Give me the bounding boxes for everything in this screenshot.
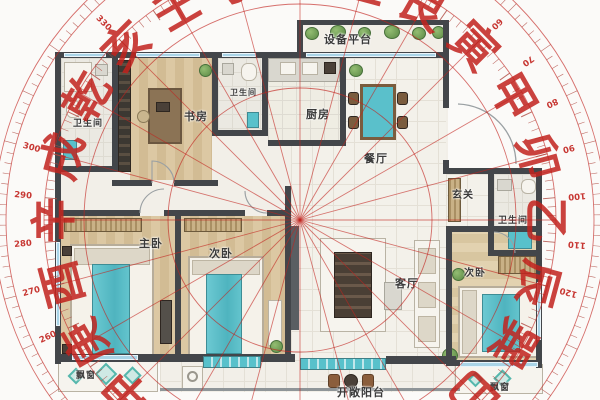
room-label-bath-top-left: 卫生间 [73,116,103,129]
tv-wall [291,226,299,330]
plant-icon [349,64,363,77]
desk-chair [137,110,150,123]
svg-text:100: 100 [568,190,587,202]
svg-text:90: 90 [561,142,575,155]
wardrobe [64,218,142,232]
plant-icon [270,340,283,353]
dining-chair [397,116,408,129]
svg-text:甲: 甲 [478,64,548,131]
wall [112,180,152,186]
room-label-kitchen: 厨房 [306,106,330,122]
bath-mat [63,140,77,160]
shower-door [247,112,259,128]
sofa-cushion [418,282,436,308]
shower-area [508,231,532,249]
room-label-bay-window-right: 飘窗 [490,380,510,393]
wall [112,52,118,172]
kitchen-sink [280,62,296,75]
wall [446,232,452,362]
plant-icon [305,27,319,40]
dining-chair [397,92,408,105]
balcony-sliding-door [203,356,261,368]
toilet [521,179,536,194]
wardrobe [498,256,540,274]
svg-text:70: 70 [520,53,535,68]
wall [488,250,542,256]
wall [175,216,181,356]
wall [55,166,118,172]
wall [340,52,346,146]
wall [488,174,494,256]
room-label-study: 书房 [184,108,208,124]
wall [262,52,268,136]
dining-chair [348,116,359,129]
floor-plan-screenshot: 卫生间 书房 卫生间 设备平台 厨房 餐厅 玄关 卫生间 主卧 次卧 客厅 次卧… [0,0,600,400]
washing-machine-door [187,371,198,382]
svg-text:寅: 寅 [439,11,510,82]
bed-pillows [192,260,260,275]
svg-text:120: 120 [559,285,579,299]
window [64,53,106,57]
svg-text:330: 330 [94,14,114,34]
stove [324,62,336,74]
wall [212,130,268,136]
bed-pillows [462,290,477,354]
entry-door-arc [458,104,516,164]
wall [297,20,449,25]
room-label-bath-right: 卫生间 [498,213,528,226]
bay-window-glass [460,362,538,367]
wall [212,52,218,136]
bookshelf [118,60,131,172]
nightstand [62,246,72,256]
dresser [160,300,172,344]
balcony-sliding-door [300,358,386,370]
room-label-bedroom-mid: 次卧 [209,245,233,261]
window [136,53,200,57]
sink [497,179,512,191]
desk [148,88,182,144]
room-label-foyer: 玄关 [452,186,474,201]
decor-shelf [334,252,372,318]
svg-text:壬: 壬 [144,0,211,42]
room-label-bay-window-left: 飘窗 [76,368,96,381]
window [537,282,541,340]
bed-blanket [206,274,242,354]
svg-text:280: 280 [14,238,33,250]
room-label-open-balcony: 开敞阳台 [337,384,385,400]
kitchen-sink [302,62,318,75]
laptop [156,102,170,112]
dining-table [360,84,396,140]
bay-window-glass [72,355,138,360]
svg-text:270: 270 [22,285,42,299]
shower-tray [64,62,92,92]
wardrobe [184,218,242,232]
sofa-cushion [418,248,436,274]
wall [446,226,542,232]
balcony-railing [160,388,460,391]
wall [443,20,449,108]
wall [55,210,140,216]
bed-blanket [92,264,130,354]
toilet [241,63,257,81]
sofa-cushion [418,316,436,342]
room-label-equipment-platform: 设备平台 [324,31,372,47]
svg-text:癸: 癸 [276,0,324,1]
bed-blanket [482,294,520,352]
svg-text:子: 子 [207,0,265,14]
room-label-dining: 餐厅 [364,150,388,166]
plant-icon [412,27,426,40]
nightstand [62,344,72,354]
svg-text:290: 290 [14,190,33,202]
svg-text:80: 80 [544,95,559,109]
svg-text:300: 300 [22,141,42,155]
window [306,53,436,57]
wall [285,186,291,356]
window [222,53,256,57]
dining-chair [348,92,359,105]
svg-text:60: 60 [489,16,504,31]
room-label-living-room: 客厅 [395,275,419,291]
plant-icon [199,64,212,77]
wall [268,140,346,146]
svg-text:丑: 丑 [334,0,392,14]
room-label-bedroom-right: 次卧 [464,264,486,279]
wall [174,180,218,186]
room-label-master-bedroom: 主卧 [139,235,163,251]
window [56,242,60,326]
svg-text:110: 110 [568,238,587,250]
room-label-bath-top-mid: 卫生间 [230,87,257,98]
plant-icon [384,25,400,39]
sink [222,63,234,75]
sink [95,64,108,76]
